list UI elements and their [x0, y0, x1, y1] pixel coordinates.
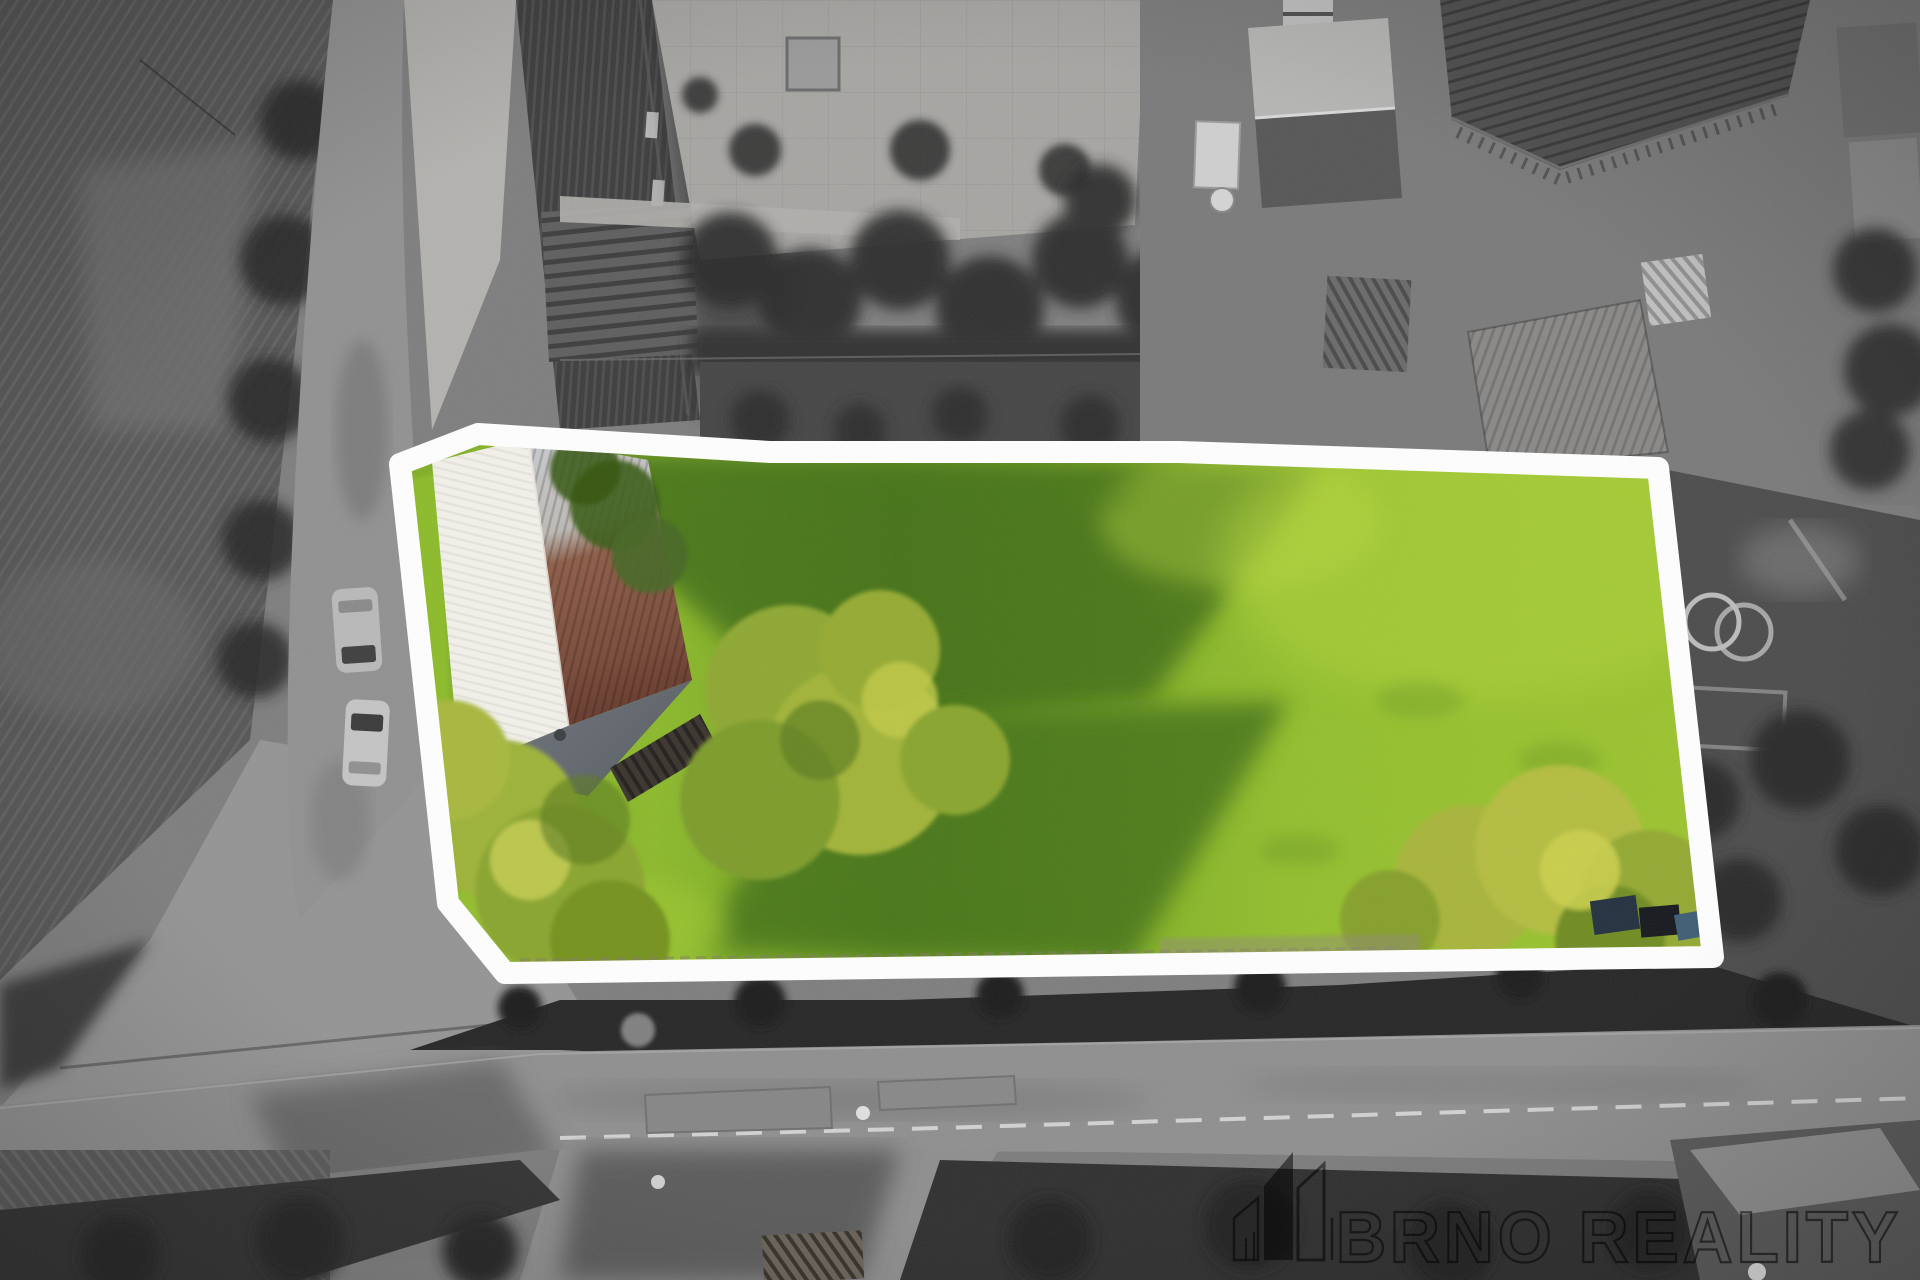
brand-text: BRNO REALITY — [1336, 1198, 1902, 1278]
vignette — [0, 0, 1920, 1280]
aerial-photo: BRNO REALITY — [0, 0, 1920, 1280]
